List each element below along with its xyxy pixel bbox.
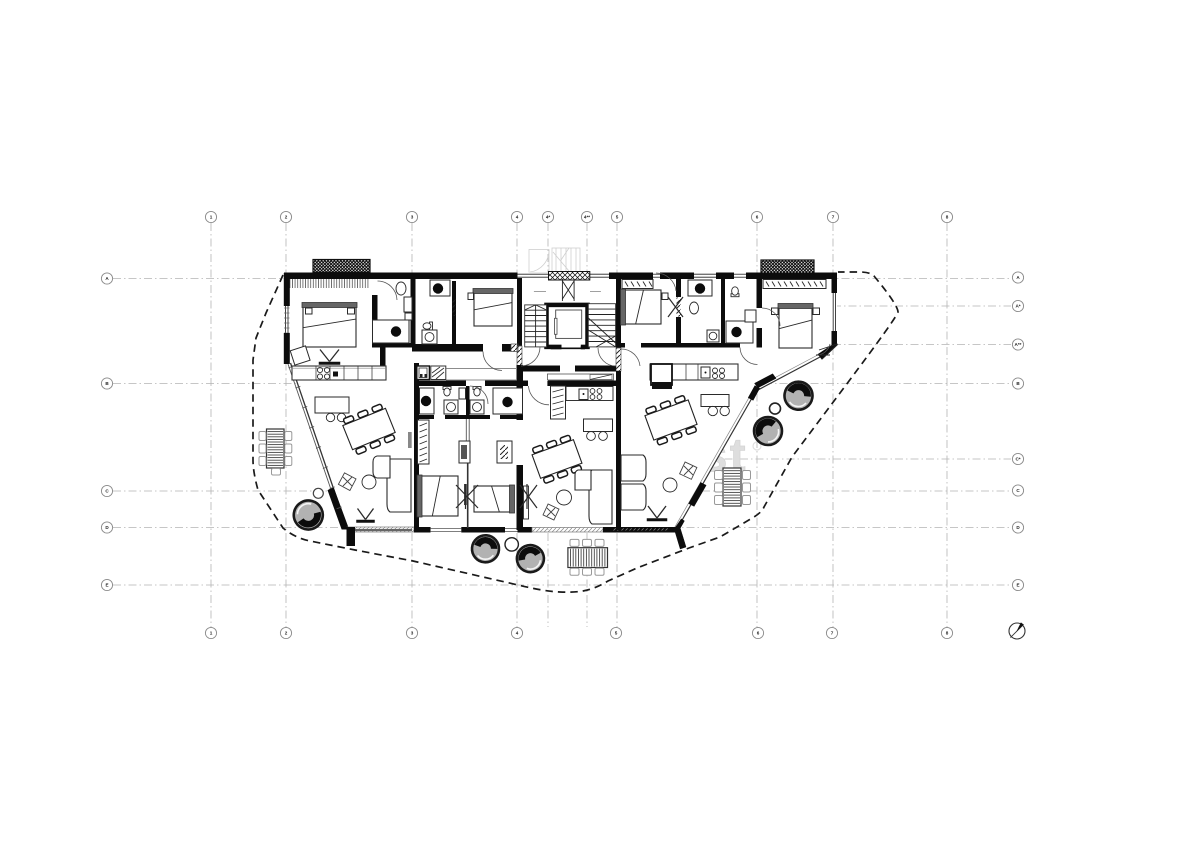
svg-text:6: 6 (756, 215, 759, 220)
svg-text:4*: 4* (546, 215, 551, 220)
svg-text:3: 3 (411, 215, 414, 220)
svg-text:4: 4 (516, 631, 519, 636)
svg-text:1: 1 (210, 215, 213, 220)
svg-text:5: 5 (616, 215, 619, 220)
svg-text:4**: 4** (584, 215, 590, 220)
svg-text:7: 7 (832, 215, 835, 220)
svg-text:8: 8 (946, 215, 949, 220)
svg-text:6: 6 (757, 631, 760, 636)
svg-text:3: 3 (411, 631, 414, 636)
svg-text:C*: C* (1015, 457, 1020, 462)
svg-text:8: 8 (946, 631, 949, 636)
svg-text:7: 7 (831, 631, 834, 636)
svg-text:1: 1 (210, 631, 213, 636)
svg-text:2: 2 (285, 215, 288, 220)
svg-text:E: E (105, 583, 108, 588)
svg-text:5: 5 (615, 631, 618, 636)
svg-text:A*: A* (1015, 304, 1020, 309)
svg-text:4: 4 (516, 215, 519, 220)
svg-text:A**: A** (1015, 342, 1022, 347)
svg-text:E: E (1016, 583, 1019, 588)
svg-text:2: 2 (285, 631, 288, 636)
